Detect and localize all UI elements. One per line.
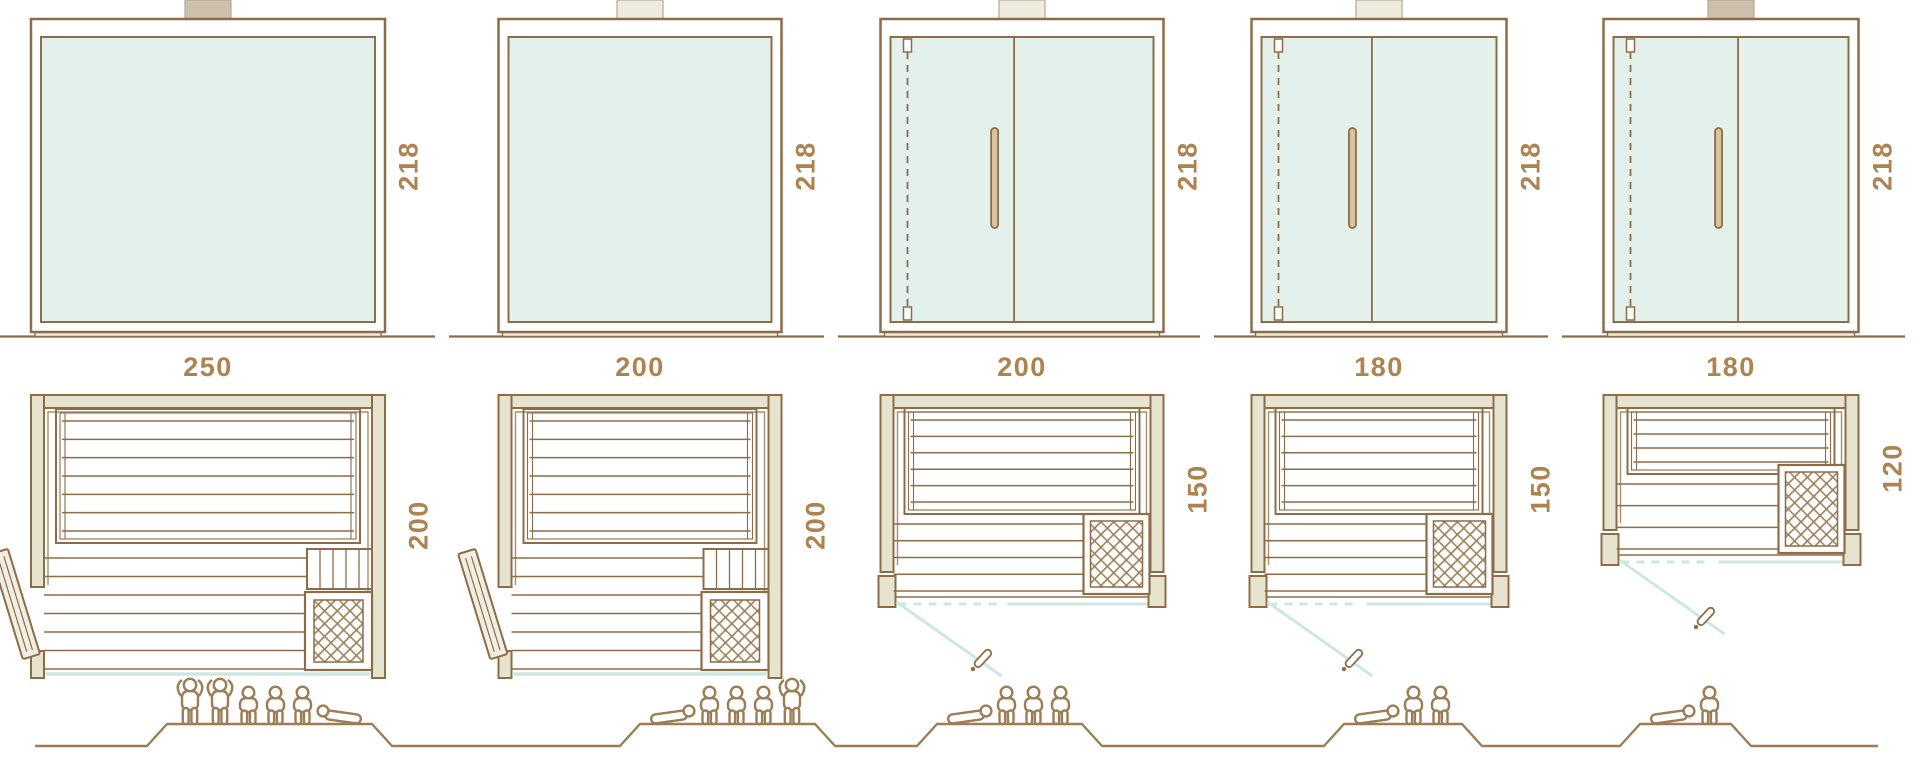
front-width-label: 180: [1706, 352, 1756, 383]
floor-plan-unit-2: [458, 395, 781, 678]
door-handle-icon: [1340, 648, 1364, 673]
front-height-label: 218: [1172, 141, 1203, 191]
front-width-label: 200: [997, 352, 1047, 383]
floor-plan-unit-4: [1250, 395, 1509, 676]
sauna-size-diagram: 250 218 200 200 218 200 200 218 150 180 …: [0, 0, 1920, 770]
plan-depth-label: 200: [800, 500, 831, 550]
floor-plan-unit-1: [0, 395, 385, 678]
door-handle-icon: [1692, 606, 1716, 631]
floor-plan-unit-5: [1602, 395, 1861, 634]
diagram-line-art: [0, 0, 1920, 770]
plan-depth-label: 150: [1182, 464, 1213, 514]
elevation-unit-5: [1604, 0, 1859, 337]
capacity-figures-unit-1: [178, 679, 362, 724]
elevation-unit-2: [499, 0, 782, 337]
capacity-figures-unit-2: [651, 679, 805, 724]
front-height-label: 218: [394, 141, 425, 191]
capacity-figures-unit-5: [1651, 687, 1718, 724]
elevation-unit-1: [31, 0, 385, 337]
front-height-label: 218: [790, 141, 821, 191]
plan-depth-label: 200: [404, 500, 435, 550]
capacity-figures-unit-3: [948, 687, 1069, 724]
plan-depth-label: 120: [1877, 443, 1908, 493]
door-handle-icon: [969, 648, 993, 673]
capacity-figures-unit-4: [1355, 687, 1449, 724]
plan-depth-label: 150: [1525, 464, 1556, 514]
elevation-unit-4: [1252, 0, 1507, 337]
front-width-label: 200: [615, 352, 665, 383]
front-height-label: 218: [1515, 141, 1546, 191]
floor-plan-unit-3: [879, 395, 1166, 676]
front-width-label: 250: [183, 352, 233, 383]
elevation-unit-3: [881, 0, 1164, 337]
ground-line: [35, 724, 1878, 746]
front-width-label: 180: [1354, 352, 1404, 383]
front-height-label: 218: [1867, 141, 1898, 191]
